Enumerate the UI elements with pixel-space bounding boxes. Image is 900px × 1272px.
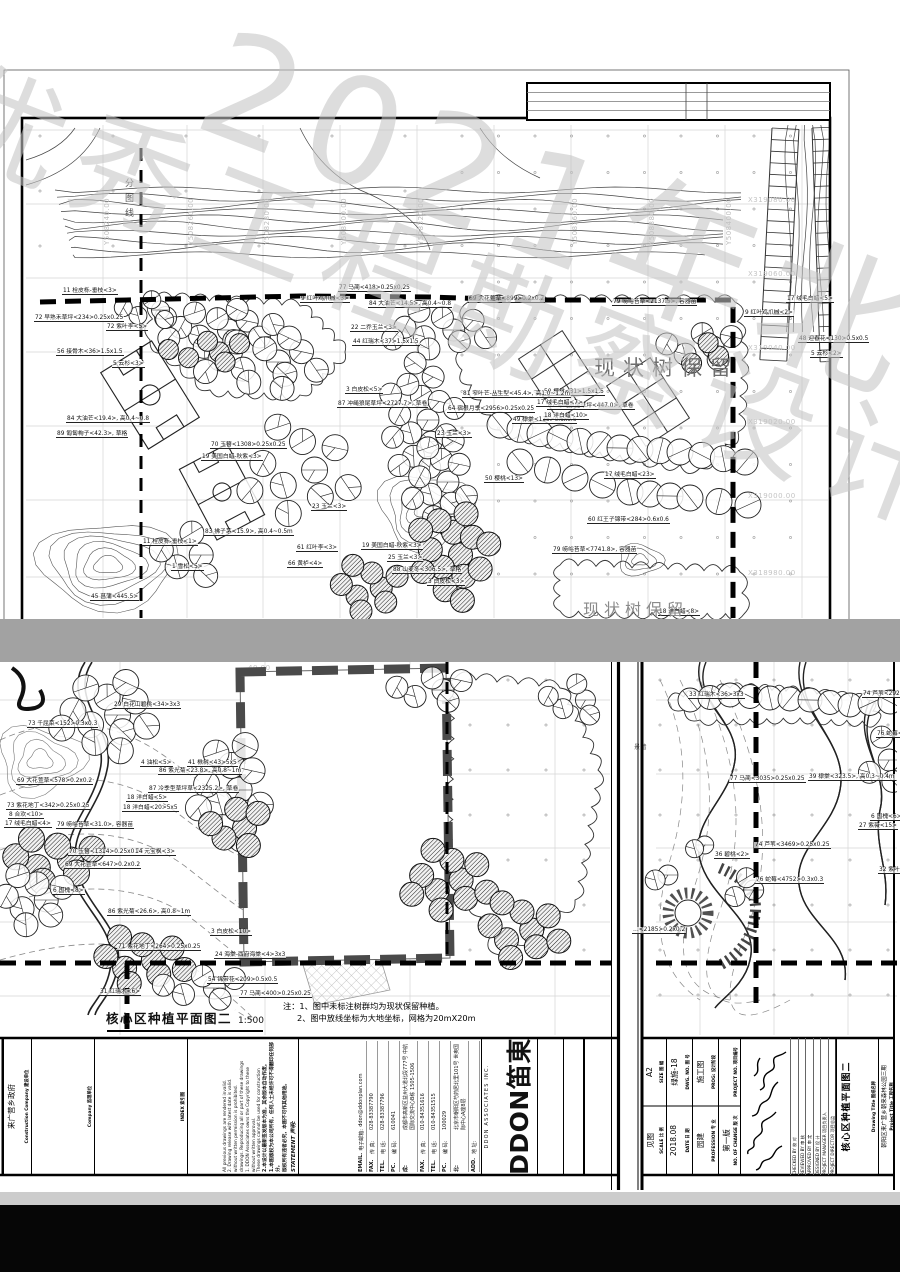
- drawing-page: 11 栓皮栎-垂枝<3>77 马蔺<418>0.25x0.259 红叶鸡爪槭<3…: [0, 0, 900, 1272]
- role-label-5: REVIEWED BY 审 核: [798, 1038, 807, 1175]
- statement-cell: STATEMENT 声明: 版权所有违者必究，本图不可作其他用途。1.本图版权为…: [187, 1038, 299, 1175]
- size-cell: SIZE 图 幅 A2: [642, 1038, 667, 1106]
- ddon-logo: DDON笛東: [500, 1038, 536, 1175]
- scale-cell: SCALE 比 例 见图: [642, 1106, 667, 1175]
- stage-cell: PROG: 设计阶段 施工图: [692, 1038, 719, 1106]
- contact-row: EMAIL.电子邮箱:ddon@ddonplan.com: [356, 1041, 367, 1172]
- statement-line-cn: 1.本图版权为本公司所有，任何人士未经许可不得翻印任何部分。: [270, 1041, 283, 1172]
- bottom-black-bar: [0, 1205, 900, 1272]
- supervision-company-cell: Company 监理单位: [31, 1038, 95, 1175]
- drawing-title-cell: Drawing Title 图纸名称 核心区种植平面图二: [836, 1038, 879, 1175]
- dwgno-cell: DWG. NO. 图 号 绿施-18: [666, 1038, 693, 1106]
- drawing-notes: 注：1、图中未标注树群均为现状保留种植。 2、图中放线坐标为大地坐标，网格为20…: [283, 1001, 476, 1025]
- contact-row: PC.编 码:610041: [389, 1041, 400, 1172]
- construction-company-cell: Construction Company 建设单位 来广营乡政府: [3, 1038, 32, 1175]
- contact-row: ADD.地 址:: [469, 1041, 480, 1172]
- role-label-2: PROJECT MANAGER 项目负责人: [820, 1038, 829, 1175]
- empty-cell-1: [537, 1038, 564, 1175]
- change-cell: NO. OF CHANGE 版 次 第一版: [718, 1106, 741, 1175]
- contact-row: 成:成都市高新区益州大道北段777号 中航国际交流中心B栋 1505-1506: [400, 1041, 418, 1172]
- role-label-6: CHECKED BY 校 对: [790, 1038, 799, 1175]
- page-edge-strip: [0, 1192, 900, 1205]
- role-label-3: DESIGNED BY 设 计: [813, 1038, 822, 1175]
- contact-row: FAX.传 真:028-83387790: [367, 1041, 378, 1172]
- division-line-label: 分图线: [122, 178, 135, 223]
- preserve-trees-label-2: 现状树保留: [583, 596, 688, 620]
- contact-row: 北:北京市朝阳区芍药居北里101号 世奥国际中心A座8层: [451, 1041, 469, 1172]
- drawing-title-caption: 核心区种植平面图二1:500: [106, 1008, 264, 1030]
- contact-row: TEL.电 话:010-84351515: [429, 1041, 440, 1172]
- contact-row: TEL.电 话:028-83387796: [378, 1041, 389, 1172]
- empty-cell-2: [563, 1038, 585, 1175]
- index-cell: INDEX 索引图: [94, 1038, 188, 1175]
- preserve-trees-label-1: 现状树保留: [594, 352, 739, 382]
- contact-cell: ADD.地 址:北:北京市朝阳区芍药居北里101号 世奥国际中心A座8层PC.编…: [298, 1038, 482, 1175]
- sheet-divider-band: [0, 619, 900, 662]
- contact-row: FAX.传 真:010-84351616: [418, 1041, 429, 1172]
- boundary-lines: [40, 148, 733, 618]
- date-cell: DATE 日 期 2018.08: [666, 1106, 693, 1175]
- project-title-cell: Project Title 工程名称 朝阳区来广营乡朝来森林公园三期: [878, 1038, 896, 1175]
- building-outline: [240, 668, 450, 962]
- role-label-4: APPROVED BY 审 定: [805, 1038, 814, 1175]
- projectno-cell: PROJECT NO. 项目编号: [718, 1038, 741, 1106]
- profession-cell: PROFESSION 专 业 园建: [692, 1106, 719, 1175]
- contact-row: PC.编 码:100029: [440, 1041, 451, 1172]
- ddon-logo-cell: DDON笛東 DDON ASSOCIATES INC.: [481, 1038, 538, 1175]
